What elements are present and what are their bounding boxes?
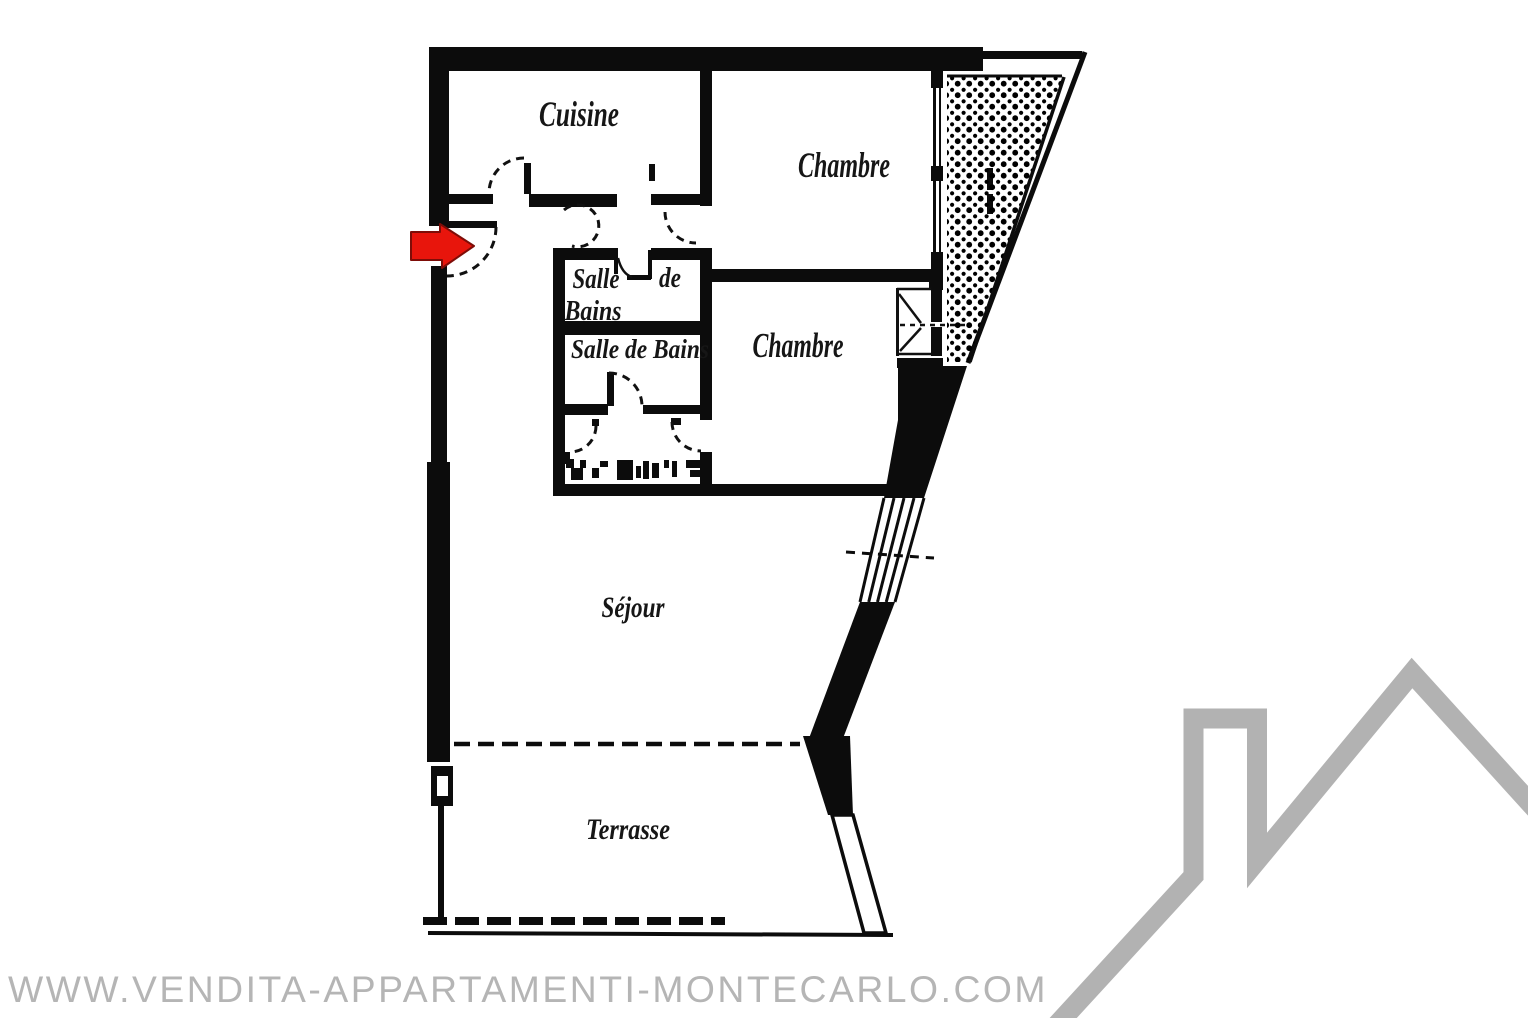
svg-text:Séjour: Séjour <box>602 591 665 624</box>
svg-text:Terrasse: Terrasse <box>586 813 670 846</box>
svg-text:Chambre: Chambre <box>798 145 890 185</box>
svg-text:WWW.VENDITA-APPARTAMENTI-MONTE: WWW.VENDITA-APPARTAMENTI-MONTECARLO.COM <box>8 969 1048 1010</box>
svg-text:Salle de Bains: Salle de Bains <box>571 334 709 364</box>
svg-text:Cuisine: Cuisine <box>539 94 619 134</box>
svg-text:Chambre: Chambre <box>753 326 844 365</box>
svg-text:de: de <box>659 262 681 294</box>
svg-text:Bains: Bains <box>564 296 622 327</box>
svg-text:Salle: Salle <box>573 263 620 295</box>
